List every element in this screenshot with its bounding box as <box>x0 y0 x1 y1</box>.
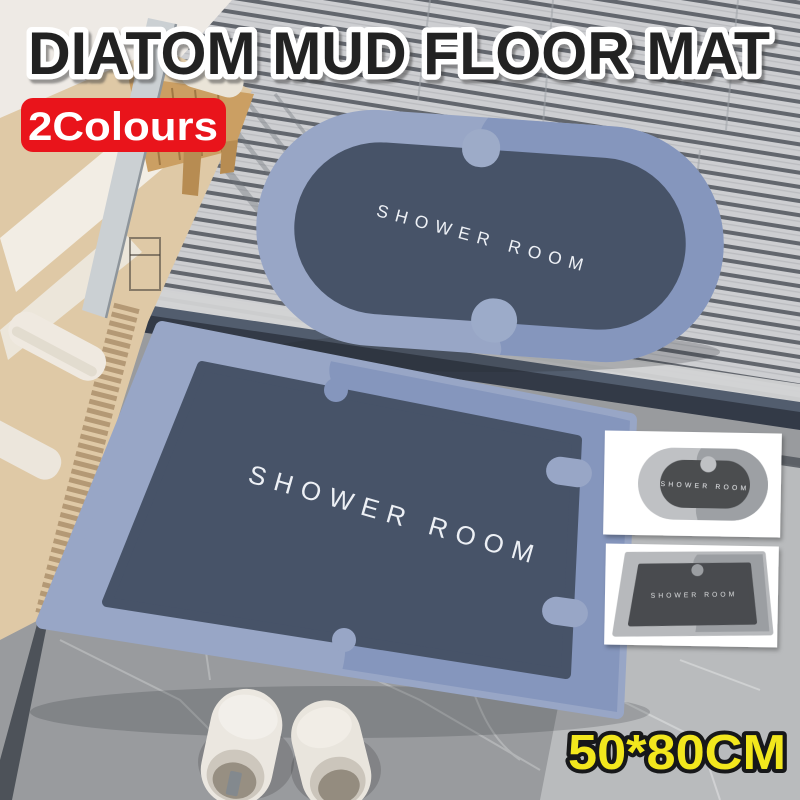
thumbnail-oval-card: SHOWER ROOM <box>603 430 782 537</box>
rect-mat-knob-top <box>324 378 348 402</box>
colours-badge-label: 2Colours <box>28 105 218 149</box>
product-image: SHOWER ROOM SHOWER ROOM <box>0 0 800 800</box>
size-label: 50*80CM <box>568 726 786 780</box>
thumbnail-rect-card: SHOWER ROOM <box>604 544 779 648</box>
colours-badge: 2Colours <box>21 98 226 152</box>
oval-mat: SHOWER ROOM <box>248 102 731 372</box>
product-scene: SHOWER ROOM SHOWER ROOM <box>0 0 800 800</box>
rect-mat-knob-bottom <box>332 628 356 652</box>
product-title: DIATOM MUD FLOOR MAT <box>28 20 770 87</box>
